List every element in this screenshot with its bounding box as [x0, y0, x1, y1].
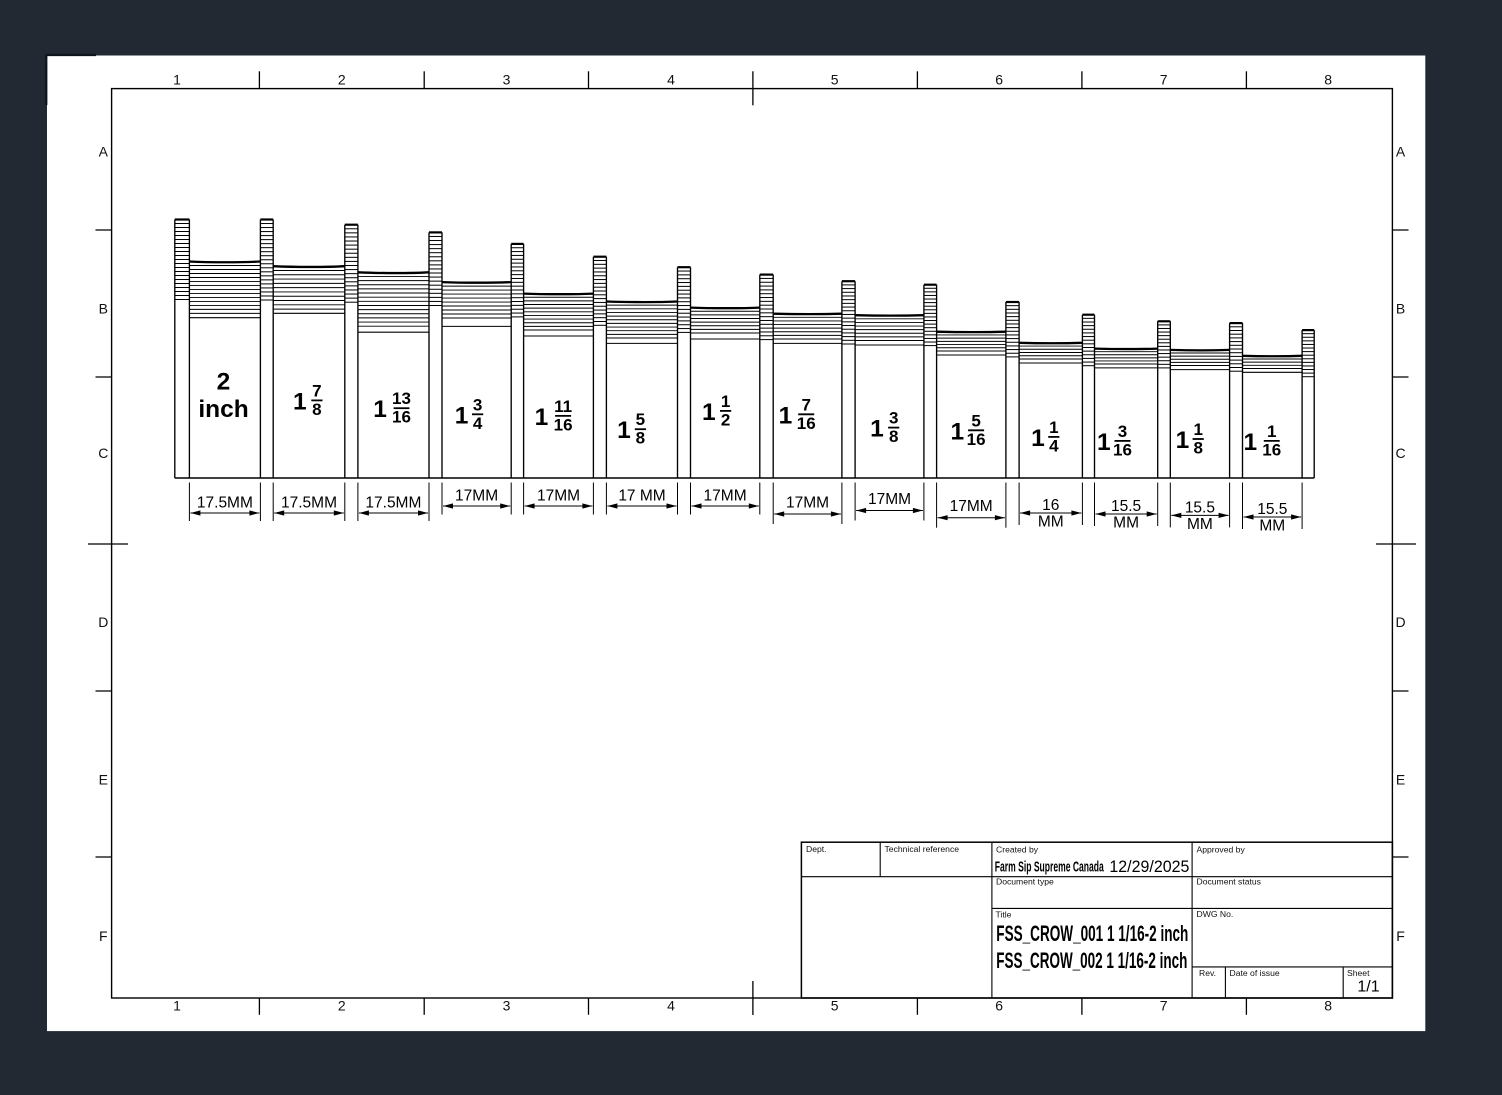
- svg-text:B: B: [99, 301, 108, 317]
- svg-text:1: 1: [1031, 425, 1045, 452]
- svg-text:1: 1: [535, 404, 549, 431]
- svg-text:E: E: [1396, 772, 1405, 788]
- svg-text:Approved by: Approved by: [1197, 845, 1246, 855]
- svg-text:MM: MM: [1259, 518, 1285, 535]
- svg-text:5: 5: [831, 72, 839, 88]
- svg-text:16: 16: [392, 408, 411, 427]
- svg-text:1: 1: [721, 392, 730, 411]
- svg-text:17MM: 17MM: [537, 488, 580, 505]
- svg-text:1: 1: [293, 388, 307, 415]
- svg-text:6: 6: [995, 998, 1003, 1014]
- svg-text:12/29/2025: 12/29/2025: [1109, 857, 1189, 876]
- svg-text:Dept.: Dept.: [806, 844, 827, 854]
- svg-text:17.5MM: 17.5MM: [365, 495, 421, 512]
- svg-text:5: 5: [831, 998, 839, 1014]
- svg-text:3: 3: [503, 72, 511, 88]
- svg-text:17MM: 17MM: [455, 488, 498, 505]
- svg-text:16: 16: [1262, 440, 1281, 459]
- svg-text:Rev.: Rev.: [1199, 968, 1216, 978]
- svg-text:7: 7: [801, 395, 810, 414]
- svg-text:5: 5: [971, 411, 980, 430]
- svg-text:7: 7: [312, 381, 321, 400]
- svg-text:1: 1: [870, 416, 884, 443]
- svg-text:8: 8: [636, 429, 645, 448]
- svg-text:1/1: 1/1: [1357, 979, 1379, 996]
- svg-text:15.5: 15.5: [1185, 499, 1215, 516]
- svg-text:MM: MM: [1038, 514, 1064, 531]
- svg-text:17MM: 17MM: [950, 498, 993, 515]
- svg-text:Farm Sip Supreme Canada: Farm Sip Supreme Canada: [995, 859, 1104, 876]
- svg-text:Date of issue: Date of issue: [1230, 968, 1280, 978]
- svg-text:F: F: [99, 928, 108, 944]
- svg-text:16: 16: [1113, 440, 1132, 459]
- svg-text:16: 16: [554, 415, 573, 434]
- svg-text:16: 16: [1042, 497, 1059, 514]
- svg-text:C: C: [98, 445, 108, 461]
- svg-text:MM: MM: [1113, 515, 1139, 532]
- svg-text:8: 8: [889, 427, 898, 446]
- svg-text:F: F: [1396, 928, 1405, 944]
- svg-text:3: 3: [889, 409, 898, 428]
- svg-text:Document type: Document type: [996, 877, 1054, 887]
- svg-text:4: 4: [667, 998, 675, 1014]
- svg-text:1: 1: [173, 72, 181, 88]
- svg-text:16: 16: [967, 430, 986, 449]
- svg-text:8: 8: [1193, 439, 1202, 458]
- svg-text:1: 1: [702, 399, 716, 426]
- svg-text:1: 1: [1243, 429, 1257, 456]
- svg-text:2: 2: [721, 410, 730, 429]
- svg-text:8: 8: [1324, 998, 1332, 1014]
- svg-text:Title: Title: [996, 910, 1012, 920]
- svg-text:1: 1: [1193, 420, 1202, 439]
- svg-text:8: 8: [312, 400, 321, 419]
- svg-text:15.5: 15.5: [1257, 501, 1287, 518]
- svg-text:2: 2: [338, 72, 346, 88]
- svg-text:4: 4: [1049, 436, 1059, 455]
- svg-text:1: 1: [617, 417, 631, 444]
- svg-text:1: 1: [1097, 429, 1111, 456]
- svg-text:1: 1: [455, 402, 469, 429]
- svg-text:Created by: Created by: [996, 845, 1039, 855]
- svg-text:17.5MM: 17.5MM: [197, 495, 253, 512]
- svg-text:8: 8: [1324, 72, 1332, 88]
- svg-text:DWG No.: DWG No.: [1197, 909, 1234, 919]
- svg-text:B: B: [1396, 301, 1405, 317]
- svg-text:7: 7: [1160, 72, 1168, 88]
- svg-text:4: 4: [667, 72, 675, 88]
- svg-text:6: 6: [995, 72, 1003, 88]
- svg-text:1: 1: [373, 396, 387, 423]
- svg-text:16: 16: [797, 414, 816, 433]
- svg-text:3: 3: [1118, 422, 1127, 441]
- svg-text:FSS_CROW_001 1 1/16-2 inch: FSS_CROW_001 1 1/16-2 inch: [996, 921, 1188, 946]
- svg-text:17 MM: 17 MM: [618, 488, 665, 505]
- svg-text:3: 3: [503, 998, 511, 1014]
- svg-text:FSS_CROW_002 1 1/16-2 inch: FSS_CROW_002 1 1/16-2 inch: [996, 948, 1187, 973]
- svg-text:inch: inch: [198, 396, 248, 423]
- svg-text:2: 2: [338, 998, 346, 1014]
- svg-text:C: C: [1395, 445, 1405, 461]
- svg-text:4: 4: [473, 414, 483, 433]
- svg-text:1: 1: [779, 402, 793, 429]
- svg-text:E: E: [99, 772, 108, 788]
- svg-text:17MM: 17MM: [868, 491, 911, 508]
- svg-text:13: 13: [392, 389, 411, 408]
- svg-text:15.5: 15.5: [1111, 498, 1141, 515]
- svg-text:D: D: [98, 614, 108, 630]
- svg-text:A: A: [99, 144, 109, 160]
- svg-text:7: 7: [1160, 998, 1168, 1014]
- svg-text:D: D: [1395, 614, 1405, 630]
- svg-text:17MM: 17MM: [704, 488, 747, 505]
- svg-text:A: A: [1396, 144, 1406, 160]
- svg-text:11: 11: [554, 397, 572, 416]
- svg-text:Technical reference: Technical reference: [885, 844, 960, 854]
- svg-text:1: 1: [1049, 418, 1058, 437]
- svg-text:1: 1: [1267, 422, 1276, 441]
- svg-text:Document status: Document status: [1197, 877, 1261, 887]
- svg-text:1: 1: [950, 418, 964, 445]
- svg-text:Sheet: Sheet: [1347, 968, 1370, 978]
- svg-text:1: 1: [1176, 427, 1190, 454]
- svg-text:2: 2: [217, 369, 231, 396]
- svg-text:3: 3: [473, 395, 482, 414]
- svg-text:5: 5: [636, 410, 645, 429]
- svg-text:1: 1: [173, 998, 181, 1014]
- svg-text:17MM: 17MM: [786, 495, 829, 512]
- svg-text:17.5MM: 17.5MM: [281, 495, 337, 512]
- svg-text:MM: MM: [1187, 516, 1213, 533]
